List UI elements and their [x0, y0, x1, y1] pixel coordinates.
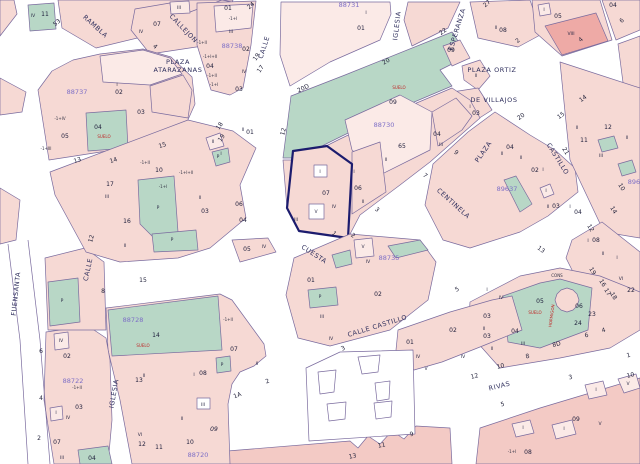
- parcel-green-p2[interactable]: [216, 356, 231, 373]
- parcel-number: 04: [433, 131, 441, 138]
- parcel-number: 03: [201, 208, 209, 215]
- parcel-number: 08: [199, 370, 207, 377]
- storey-label: I: [545, 188, 546, 194]
- storey-label: II: [495, 25, 498, 31]
- storey-label: II: [143, 373, 146, 379]
- parcel-number: 10: [186, 439, 194, 446]
- parcel-number: 01: [406, 339, 414, 346]
- storey-label: VIII: [567, 31, 574, 37]
- street-number: 2: [37, 435, 41, 442]
- storey-label: I: [116, 82, 117, 88]
- storey-label: II: [385, 157, 388, 163]
- parcel-number: 01: [246, 129, 254, 136]
- storey-label: I: [616, 255, 617, 261]
- block-code: 88737: [67, 88, 88, 96]
- storey-label: I: [365, 10, 366, 16]
- street-number: 6: [39, 348, 43, 355]
- parcel-number: 24: [574, 320, 582, 327]
- parcel-number: 01: [224, 5, 232, 12]
- cadastral-map[interactable]: IV1153RAMBLACALLEJON07IVIII4PLAZAATARAZA…: [0, 0, 640, 464]
- storey-label: III: [320, 314, 324, 320]
- parcel-number: 05: [536, 298, 544, 305]
- sub-parcel-label: -1+I: [159, 184, 168, 189]
- parcel-number: 03: [472, 110, 480, 117]
- parcel-number: 17: [106, 181, 114, 188]
- land-use-label: SUELO: [97, 134, 110, 139]
- storey-label: III: [439, 142, 443, 148]
- storey-label: I: [563, 426, 564, 432]
- parcel-number: 03: [75, 404, 83, 411]
- sub-parcel-label: CONS: [551, 273, 563, 278]
- parcel-number: 09: [572, 416, 580, 423]
- parcel-number: 11: [155, 444, 163, 451]
- sub-parcel-label: -1+II: [72, 385, 82, 390]
- parcel-number: 06: [575, 303, 583, 310]
- storey-label: I: [595, 387, 596, 393]
- plaza-planter-5: [374, 401, 392, 419]
- storey-label: P: [319, 294, 322, 300]
- storey-label: I: [543, 7, 544, 13]
- parcel-green-cl2[interactable]: [152, 230, 198, 252]
- storey-label: III: [105, 194, 109, 200]
- parcel-number: 09: [447, 47, 455, 54]
- sub-parcel-label: -1+IV: [54, 116, 66, 121]
- parcel-green-strip[interactable]: [48, 278, 80, 326]
- storey-label: II: [242, 127, 245, 133]
- storey-label: I: [587, 238, 588, 244]
- parcel-number: 07: [230, 346, 238, 353]
- storey-label: II: [547, 204, 550, 210]
- plaza-planter-2: [358, 355, 380, 374]
- parcel-number: 01: [307, 277, 315, 284]
- storey-label: II: [362, 199, 365, 205]
- storey-label: III: [294, 217, 298, 223]
- storey-label: II: [199, 195, 202, 201]
- parcel-number: 04: [94, 124, 102, 131]
- block-code: 88720: [188, 451, 209, 459]
- sub-parcel-label: -1+III: [41, 146, 52, 151]
- storey-label: P: [157, 205, 160, 211]
- storey-label: III: [229, 29, 233, 35]
- parcel-number: 02: [449, 327, 457, 334]
- parcel-number: 09: [389, 99, 397, 106]
- street-number: 4: [39, 395, 43, 402]
- sub-parcel-label: -1+I: [229, 16, 238, 21]
- parcel-number: 07: [53, 439, 61, 446]
- storey-label: III: [177, 5, 181, 11]
- storey-label: I: [542, 167, 543, 173]
- street-number: 8: [101, 288, 105, 295]
- storey-label: P: [221, 362, 224, 368]
- storey-label: I: [486, 287, 487, 293]
- parcel-number: 04: [506, 144, 514, 151]
- parcel-number: 04: [609, 2, 617, 9]
- storey-label: II: [491, 346, 494, 352]
- street-name-label: PLAZA: [166, 58, 190, 66]
- sub-parcel-label: -1+II: [140, 160, 150, 165]
- parcel-number: 04: [239, 217, 247, 224]
- parcel-number: 23: [588, 311, 596, 318]
- parcel-number: 14: [152, 332, 160, 339]
- storey-label: I: [569, 204, 570, 210]
- storey-label: P: [217, 154, 220, 160]
- land-use-label: SUELO: [392, 85, 405, 90]
- parcel-number: 08: [524, 449, 532, 456]
- land-use-label: SUELO: [528, 310, 541, 315]
- storey-label: I: [353, 169, 354, 175]
- parcel-number: 05: [61, 133, 69, 140]
- parcel-number: 02: [242, 46, 250, 53]
- street-name-label: PLAZA ORTIZ: [467, 66, 516, 74]
- sub-parcel-label: -1+I+II: [203, 54, 217, 59]
- parcel-number: 09: [210, 426, 218, 433]
- parcel-number: 02: [374, 291, 382, 298]
- street-number: 15: [139, 277, 147, 284]
- parcel-number: 11: [580, 137, 588, 144]
- parcel-number: 03: [137, 109, 145, 116]
- storey-label: II: [475, 73, 478, 79]
- storey-label: III: [521, 341, 525, 347]
- sub-parcel-label: -1+II: [197, 40, 207, 45]
- storey-label: I: [469, 104, 470, 110]
- storey-label: I: [220, 151, 221, 157]
- parcel-number: 07: [322, 190, 330, 197]
- sub-parcel-label: -1+II: [223, 317, 233, 322]
- storey-label: III: [201, 402, 205, 408]
- storey-label: VI: [619, 276, 623, 282]
- cadastral-map-canvas[interactable]: IV1153RAMBLACALLEJON07IVIII4PLAZAATARAZA…: [0, 0, 640, 464]
- parcel-number: 11: [41, 11, 49, 18]
- street-name-label: ATARAZANAS: [154, 66, 203, 74]
- parcel-number: 03: [483, 333, 491, 340]
- parcel-number: 65: [398, 143, 406, 150]
- storey-label: II: [124, 243, 127, 249]
- parcel-number: 07: [153, 21, 161, 28]
- parcel-number: 04: [574, 209, 582, 216]
- sub-parcel-label: -1+I+II: [179, 170, 193, 175]
- block-code: 896: [628, 178, 640, 186]
- storey-label: I: [522, 425, 523, 431]
- block-code: 88738: [222, 42, 243, 50]
- storey-label: II: [181, 416, 184, 422]
- parcel-number: 03: [235, 86, 243, 93]
- parcel-number: 04: [511, 328, 519, 335]
- sub-parcel-label: -1+I: [210, 82, 219, 87]
- storey-label: II: [483, 326, 486, 332]
- storey-label: II: [501, 151, 504, 157]
- block-code: 88728: [123, 316, 144, 324]
- sub-parcel-label: -1+II: [207, 73, 217, 78]
- block-code: 88722: [63, 377, 84, 385]
- parcel-number: 12: [138, 441, 146, 448]
- storey-label: II: [576, 125, 579, 131]
- block-code: 89637: [497, 185, 518, 193]
- parcel-number: 04: [206, 63, 214, 70]
- parcel-number: 03: [552, 203, 560, 210]
- parcel-green-p1[interactable]: [308, 287, 338, 308]
- storey-label: II: [602, 251, 605, 257]
- parcel-number: 22: [627, 287, 635, 294]
- parcel-number: 10: [155, 167, 163, 174]
- block-code: 88735: [379, 254, 400, 262]
- storey-label: P: [171, 237, 174, 243]
- street-name-label: DE VILLAJOS: [470, 96, 517, 104]
- parcel-number: 05: [554, 13, 562, 20]
- parcel-number: 08: [592, 237, 600, 244]
- storey-label: I: [55, 410, 56, 416]
- storey-label: I: [193, 372, 194, 378]
- storey-label: III: [599, 153, 603, 159]
- block-code: 88730: [374, 121, 395, 129]
- storey-label: III: [60, 455, 64, 461]
- parcel-07-highlighted[interactable]: [287, 146, 352, 238]
- storey-label: II: [520, 155, 523, 161]
- parcel-number: 01: [357, 25, 365, 32]
- storey-label: II: [212, 139, 215, 145]
- parcel-number: 05: [243, 246, 251, 253]
- storey-label: II: [256, 361, 259, 367]
- storey-label: VI: [138, 432, 142, 438]
- sub-parcel-label: -1+I: [508, 449, 517, 454]
- parcel-number: 02: [63, 353, 71, 360]
- plaza-planter-3: [375, 381, 390, 401]
- parcel-number: 06: [235, 201, 243, 208]
- storey-label: I: [319, 169, 320, 175]
- parcel-number: 02: [115, 89, 123, 96]
- plaza-planter-4: [327, 402, 346, 421]
- parcel-number: 04: [88, 455, 96, 462]
- parcel-number: 16: [123, 218, 131, 225]
- storey-label: P: [61, 298, 64, 304]
- parcel-number: 06: [354, 185, 362, 192]
- parcel-number: 12: [604, 124, 612, 131]
- parcel-number: 02: [531, 167, 539, 174]
- storey-label: II: [626, 135, 629, 141]
- plaza-planter-1: [318, 370, 336, 394]
- parcel-number: 03: [483, 313, 491, 320]
- land-use-label: SUELO: [136, 343, 149, 348]
- block-code: 88731: [339, 1, 360, 9]
- parcel-number: 08: [499, 27, 507, 34]
